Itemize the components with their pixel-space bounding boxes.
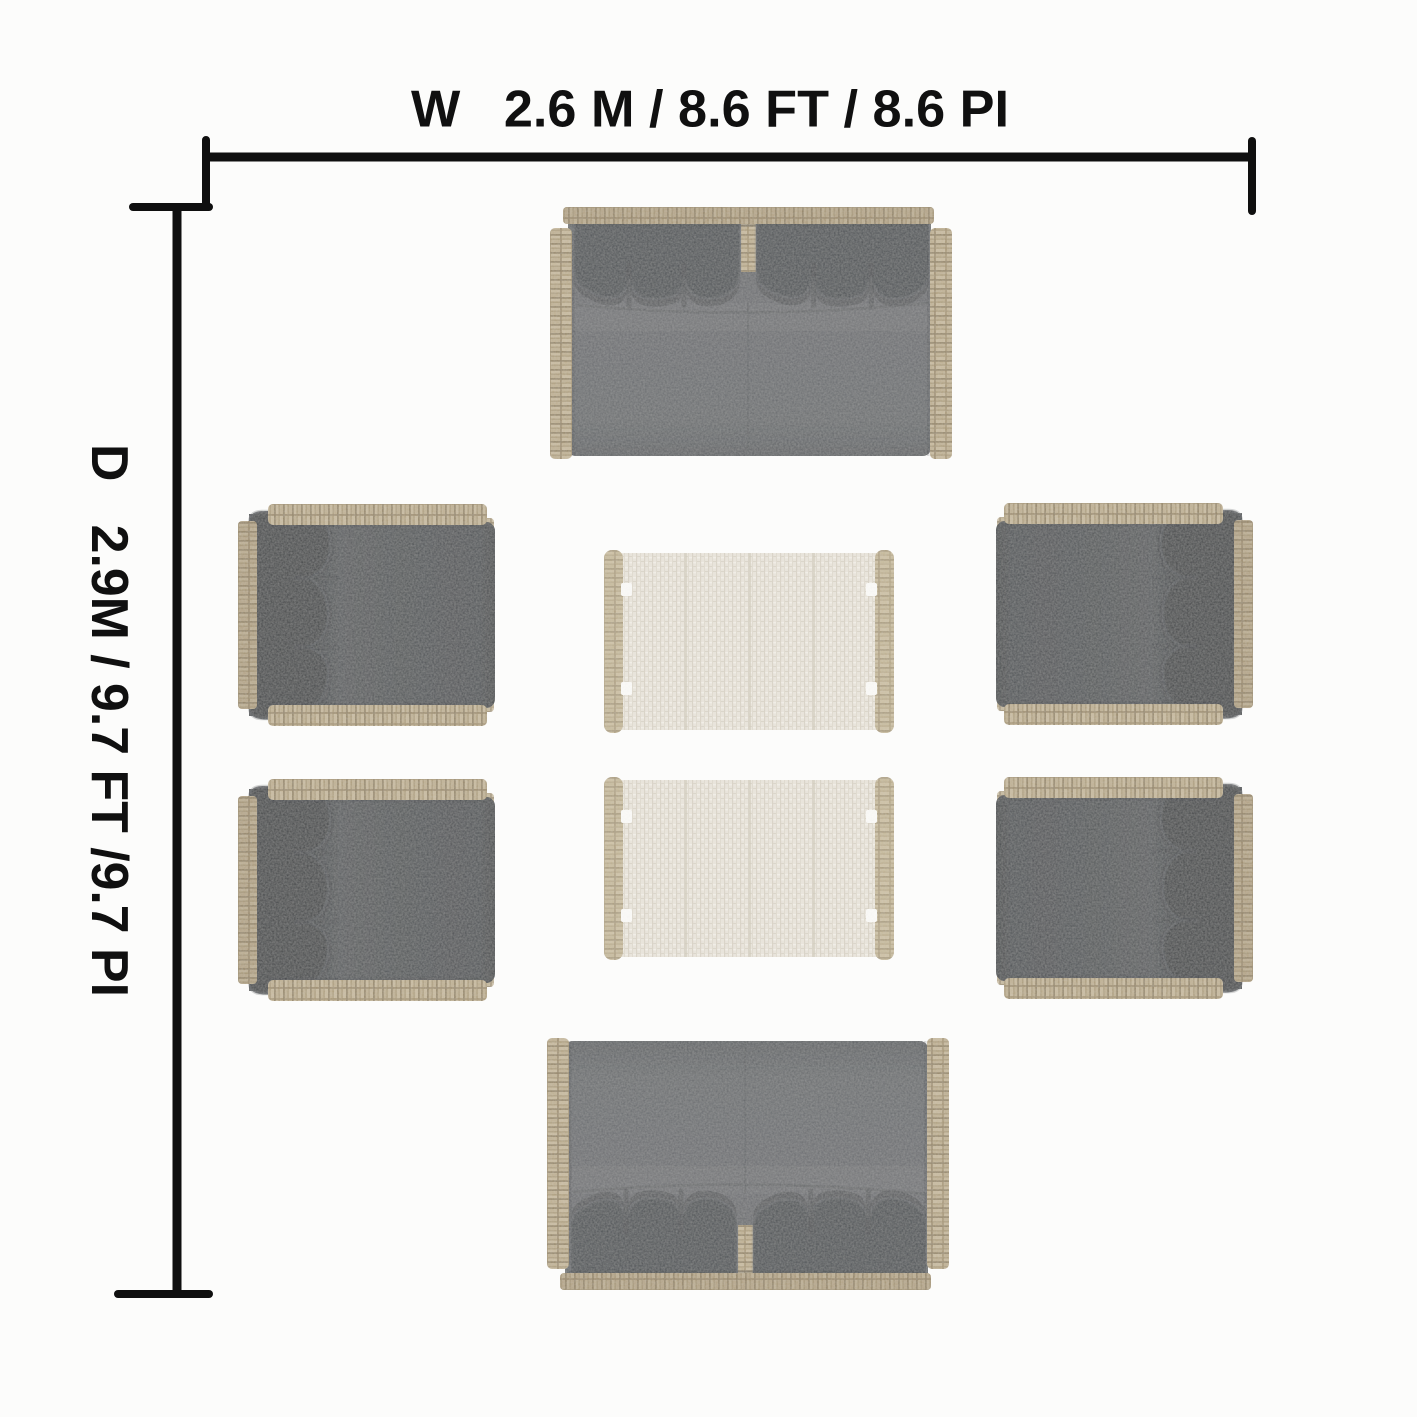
- svg-text:D 2.9M / 9.7 FT /9.7 PI: D 2.9M / 9.7 FT /9.7 PI: [81, 444, 139, 997]
- svg-text:W 2.6 M / 8.6 FT / 8.6 PI: W 2.6 M / 8.6 FT / 8.6 PI: [411, 80, 1009, 138]
